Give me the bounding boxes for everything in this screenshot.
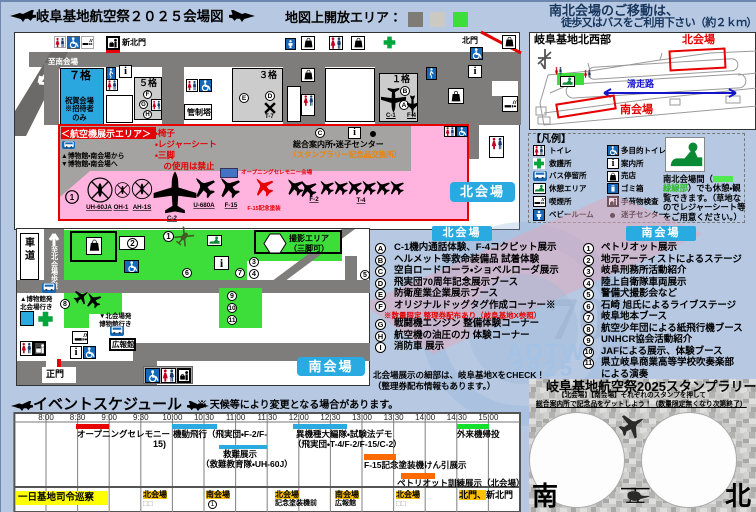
svg-text:F-15記念塗装: F-15記念塗装 xyxy=(247,204,281,212)
svg-text:OH-1: OH-1 xyxy=(114,204,129,211)
svg-text:12:00: 12:00 xyxy=(289,413,310,422)
svg-text:AH-1S: AH-1S xyxy=(133,204,152,211)
svg-text:12:30: 12:30 xyxy=(320,413,341,422)
svg-text:T-4: T-4 xyxy=(357,197,366,204)
svg-text:U-680A: U-680A xyxy=(193,202,215,209)
svg-text:1: 1 xyxy=(70,193,75,202)
svg-text:9:30: 9:30 xyxy=(133,413,149,422)
svg-text:10:00: 10:00 xyxy=(162,413,183,422)
svg-text:10:30: 10:30 xyxy=(194,413,215,422)
svg-text:8:00: 8:00 xyxy=(38,413,54,422)
svg-text:15:00: 15:00 xyxy=(478,413,499,422)
svg-text:UH-60JA: UH-60JA xyxy=(86,204,112,211)
svg-text:9:00: 9:00 xyxy=(101,413,117,422)
svg-text:14:00: 14:00 xyxy=(415,413,436,422)
svg-text:11:00: 11:00 xyxy=(226,413,246,422)
svg-text:13:30: 13:30 xyxy=(384,413,405,422)
svg-text:11:30: 11:30 xyxy=(257,413,277,422)
svg-text:14:30: 14:30 xyxy=(447,413,468,422)
svg-text:F-15: F-15 xyxy=(225,202,238,209)
svg-text:13:00: 13:00 xyxy=(352,413,373,422)
svg-text:F-2: F-2 xyxy=(309,196,319,203)
svg-text:C-2: C-2 xyxy=(167,215,178,222)
svg-text:8:30: 8:30 xyxy=(70,413,86,422)
